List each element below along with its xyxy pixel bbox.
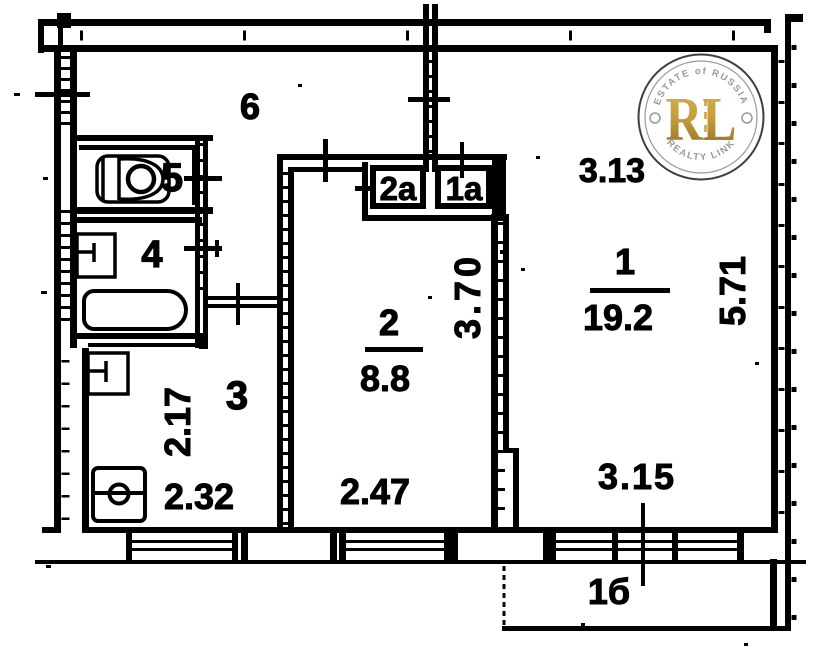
- svg-text:6: 6: [240, 86, 260, 127]
- svg-text:2: 2: [379, 302, 399, 343]
- svg-text:5.71: 5.71: [712, 256, 753, 326]
- svg-text:1: 1: [615, 241, 635, 282]
- svg-text:2.32: 2.32: [164, 476, 234, 517]
- svg-text:3.70: 3.70: [447, 253, 488, 339]
- svg-text:1а: 1а: [446, 170, 483, 207]
- svg-text:8.8: 8.8: [360, 358, 410, 399]
- svg-text:4: 4: [141, 234, 162, 276]
- svg-text:2а: 2а: [380, 170, 417, 207]
- svg-text:3.15: 3.15: [598, 456, 676, 497]
- svg-text:3: 3: [226, 374, 248, 418]
- svg-text:1б: 1б: [588, 571, 630, 612]
- svg-text:2.47: 2.47: [340, 471, 410, 512]
- svg-text:19.2: 19.2: [583, 297, 653, 338]
- svg-text:2.17: 2.17: [157, 387, 198, 457]
- svg-text:5: 5: [161, 156, 183, 200]
- svg-text:3.13: 3.13: [579, 152, 645, 190]
